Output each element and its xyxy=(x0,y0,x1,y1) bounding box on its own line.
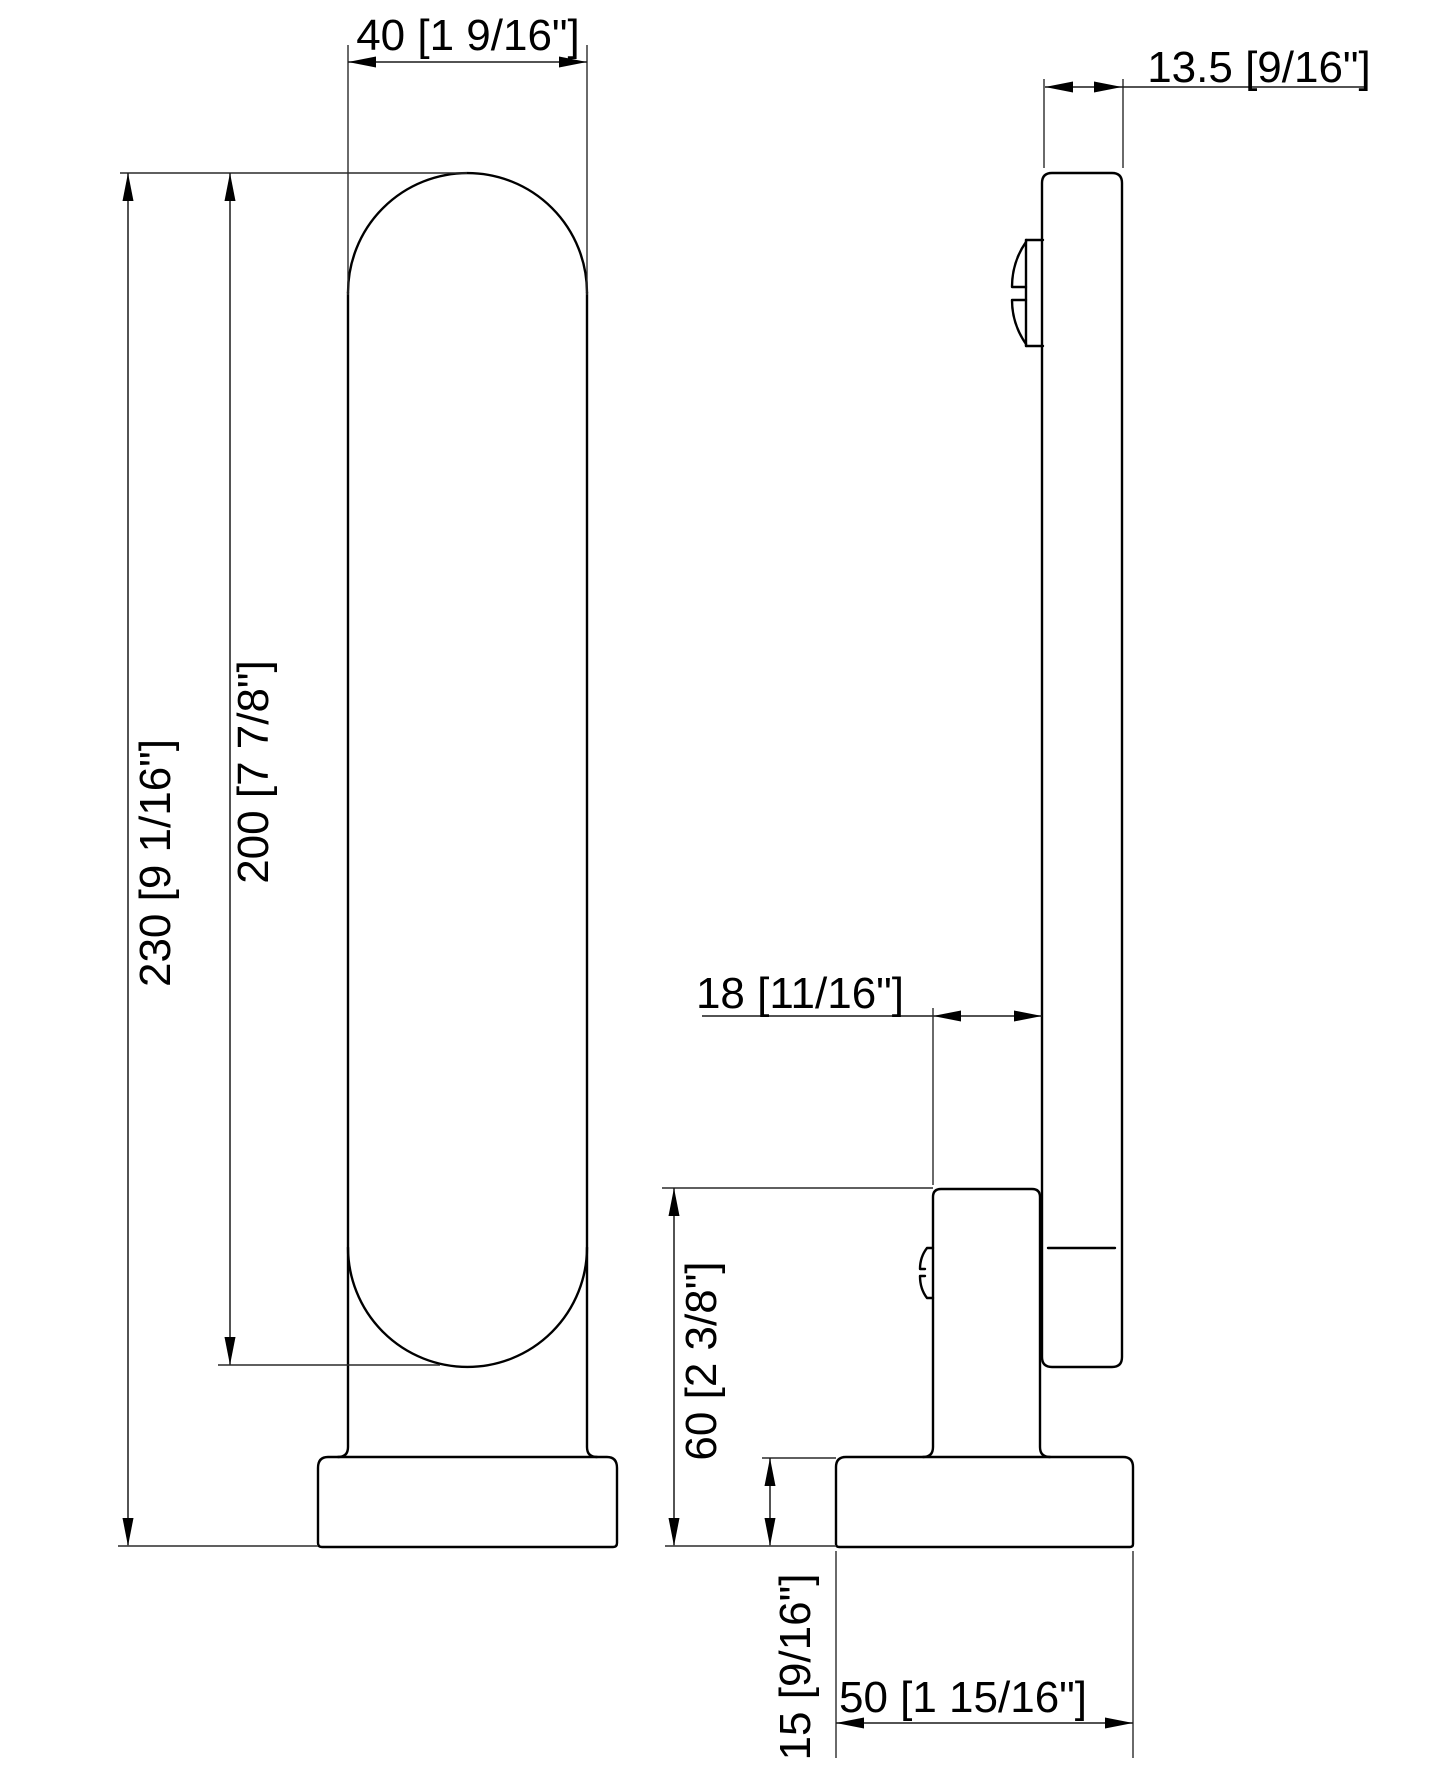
dim-label-plate-thickness: 13.5 [9/16"] xyxy=(1147,43,1371,92)
dim-label-overall-height: 230 [9 1/16"] xyxy=(131,739,180,987)
dim-label-bracket-depth: 18 [11/16"] xyxy=(696,969,904,1018)
technical-drawing-canvas: 40 [1 9/16"] 230 [9 1/16"] 200 [7 7/8"] xyxy=(0,0,1445,1769)
dim-label-body-height: 200 [7 7/8"] xyxy=(229,660,278,884)
dim-label-mount-height: 60 [2 3/8"] xyxy=(677,1261,726,1460)
dim-label-body-width: 40 [1 9/16"] xyxy=(356,11,580,60)
dim-label-base-width: 50 [1 15/16"] xyxy=(839,1673,1087,1722)
dim-label-base-height: 15 [9/16"] xyxy=(771,1574,820,1761)
drawing-background xyxy=(0,0,1445,1769)
dimension-drawing: 40 [1 9/16"] 230 [9 1/16"] 200 [7 7/8"] xyxy=(0,0,1445,1769)
